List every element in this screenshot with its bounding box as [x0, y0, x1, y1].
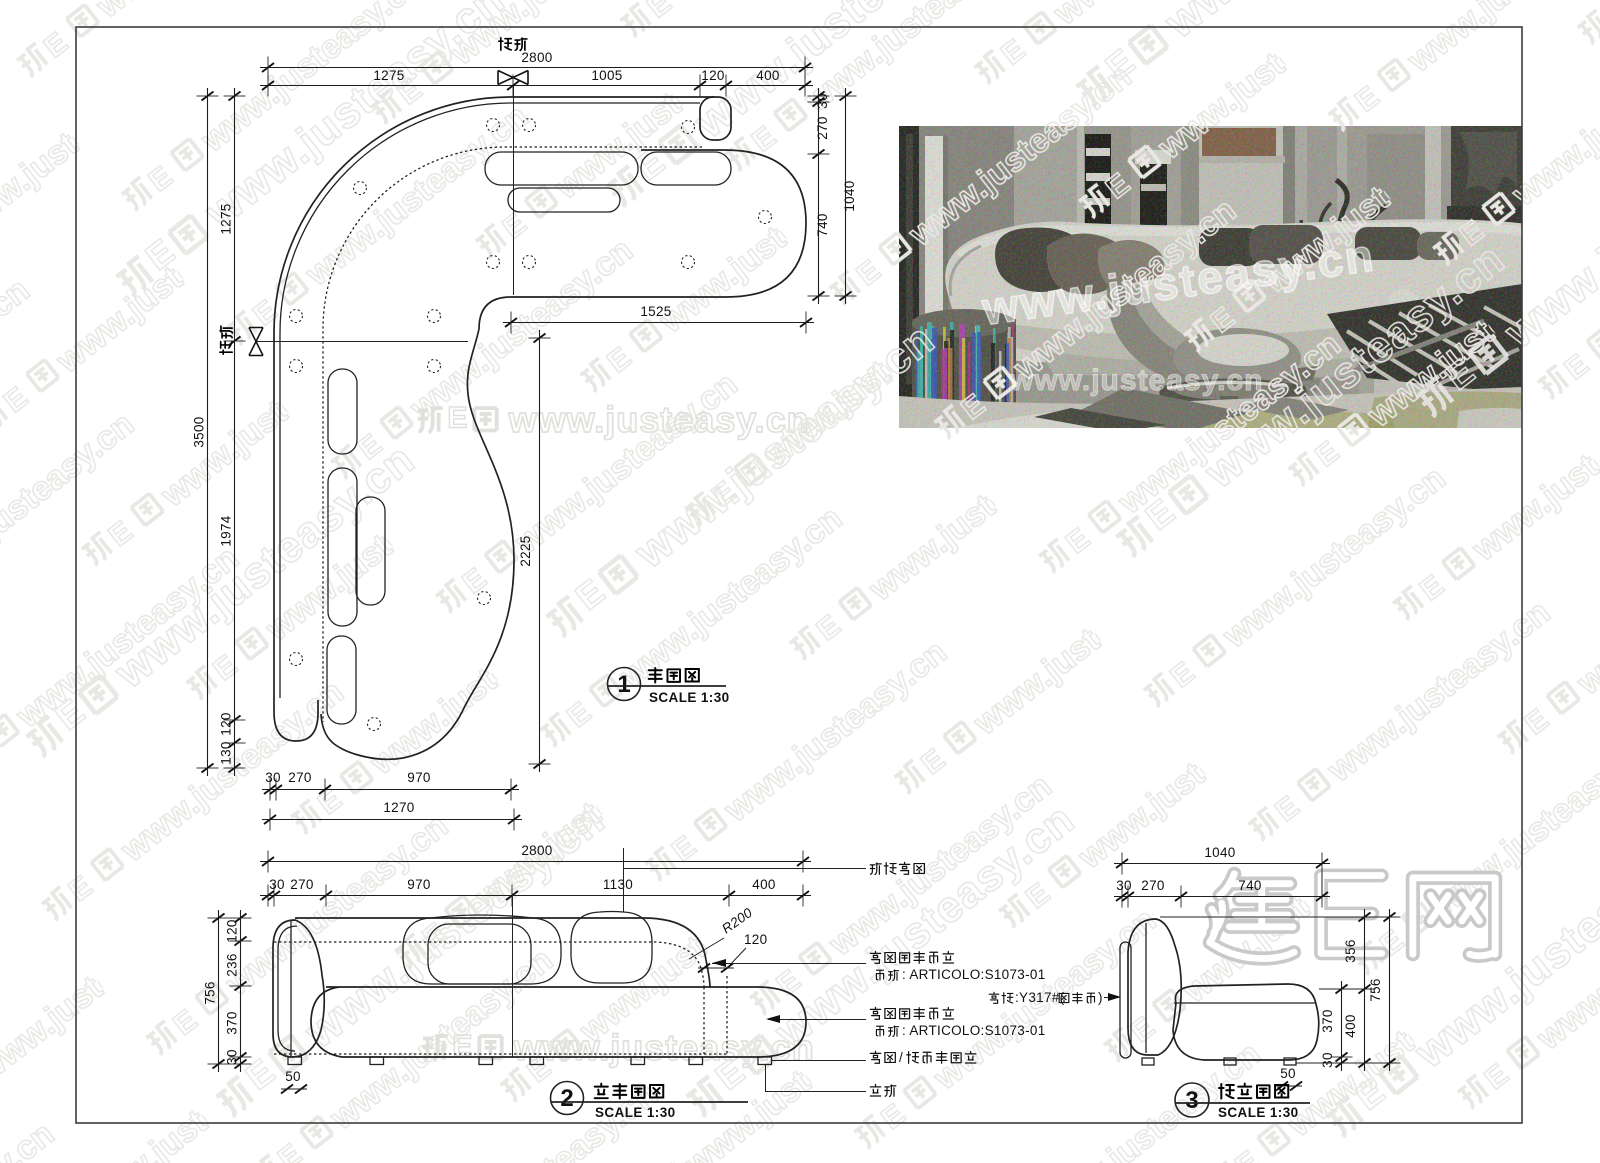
svg-text:): )	[1098, 990, 1103, 1005]
svg-text:1005: 1005	[591, 68, 622, 83]
svg-text:/: /	[899, 1050, 903, 1065]
svg-text:1525: 1525	[640, 304, 671, 319]
svg-text:30: 30	[225, 1049, 240, 1065]
svg-text:740: 740	[815, 213, 830, 236]
svg-text:1974: 1974	[219, 515, 234, 546]
svg-text:SCALE 1:30: SCALE 1:30	[595, 1105, 676, 1120]
svg-text:E: E	[447, 402, 467, 435]
svg-text:120: 120	[219, 712, 234, 735]
svg-text:120: 120	[701, 68, 724, 83]
svg-text:400: 400	[756, 68, 779, 83]
svg-text:1040: 1040	[1204, 845, 1235, 860]
svg-text:756: 756	[203, 981, 218, 1004]
svg-text:30: 30	[269, 877, 285, 892]
svg-text:SCALE 1:30: SCALE 1:30	[649, 690, 730, 705]
svg-text:30: 30	[1116, 878, 1132, 893]
svg-text:1040: 1040	[842, 180, 857, 211]
svg-text:1270: 1270	[383, 800, 414, 815]
svg-text:: ARTICOLO:S1073-01: : ARTICOLO:S1073-01	[902, 967, 1046, 982]
svg-text:356: 356	[1343, 939, 1358, 962]
svg-text:120: 120	[225, 919, 240, 942]
svg-text:50: 50	[1280, 1066, 1296, 1081]
svg-text:30: 30	[815, 93, 830, 109]
svg-text:30: 30	[1320, 1052, 1335, 1068]
svg-text:2800: 2800	[521, 50, 552, 65]
svg-text:2800: 2800	[521, 843, 552, 858]
svg-text:370: 370	[225, 1011, 240, 1034]
svg-text:970: 970	[407, 877, 430, 892]
svg-text:756: 756	[1368, 978, 1383, 1001]
svg-text:270: 270	[1141, 878, 1164, 893]
svg-text:130: 130	[219, 741, 234, 764]
svg-text::Y317#(: :Y317#(	[1015, 990, 1065, 1005]
svg-text:www.justeasy.cn: www.justeasy.cn	[1009, 364, 1263, 397]
svg-text:270: 270	[290, 877, 313, 892]
svg-text:270: 270	[815, 116, 830, 139]
svg-text:SCALE 1:30: SCALE 1:30	[1218, 1105, 1299, 1120]
svg-text:1: 1	[617, 671, 630, 698]
svg-text:30: 30	[265, 770, 281, 785]
svg-text:1275: 1275	[219, 203, 234, 234]
svg-text:3500: 3500	[192, 416, 207, 447]
svg-text:2: 2	[560, 1085, 573, 1112]
svg-text:400: 400	[1343, 1014, 1358, 1037]
svg-text:: ARTICOLO:S1073-01: : ARTICOLO:S1073-01	[902, 1023, 1046, 1038]
svg-text:50: 50	[285, 1069, 301, 1084]
svg-text:120: 120	[744, 932, 767, 947]
svg-text:3: 3	[1185, 1087, 1198, 1114]
svg-text:740: 740	[1238, 878, 1261, 893]
svg-text:1275: 1275	[373, 68, 404, 83]
svg-text:236: 236	[225, 953, 240, 976]
svg-text:2225: 2225	[518, 535, 533, 566]
svg-text:370: 370	[1320, 1009, 1335, 1032]
svg-text:1130: 1130	[603, 877, 633, 892]
svg-text:400: 400	[752, 877, 775, 892]
svg-text:270: 270	[288, 770, 311, 785]
svg-text:970: 970	[407, 770, 430, 785]
